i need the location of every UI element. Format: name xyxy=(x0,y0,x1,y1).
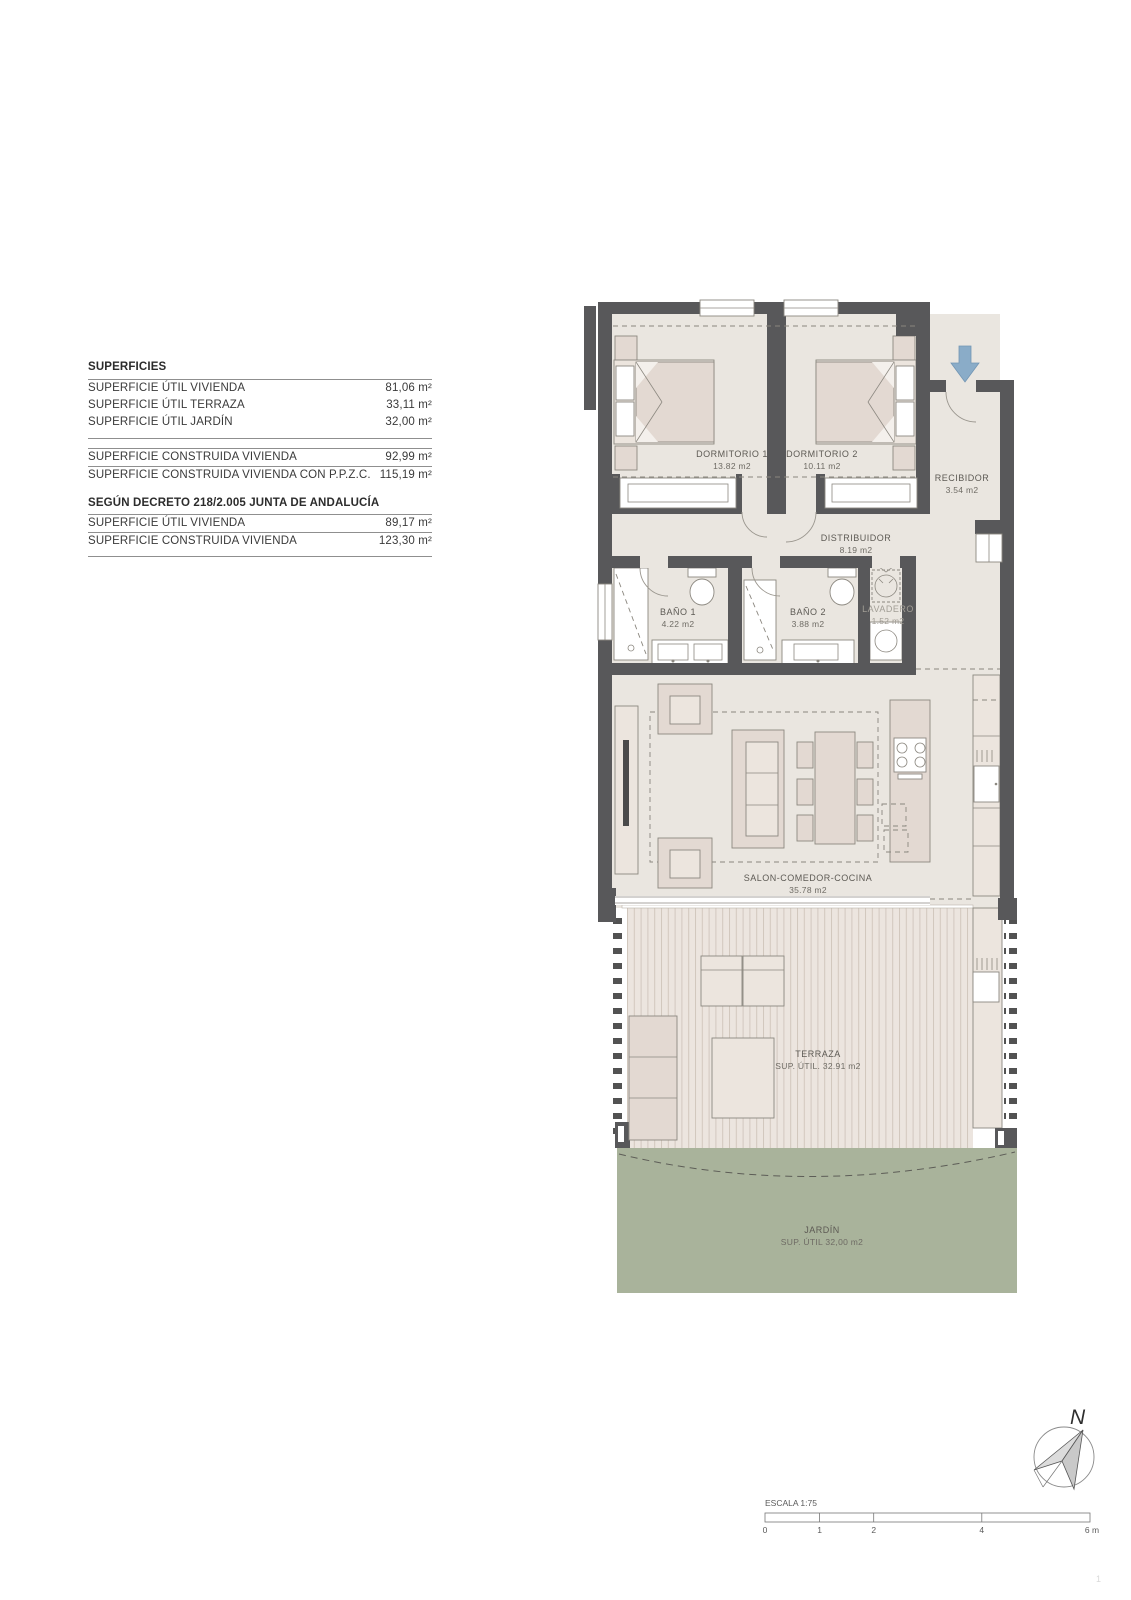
terrace-post-left-inner xyxy=(618,1126,624,1142)
north-label: N xyxy=(1070,1406,1086,1429)
room-area: 35.78 m2 xyxy=(789,885,827,895)
scale-label: ESCALA 1:75 xyxy=(765,1498,817,1508)
armchair-seat xyxy=(670,850,700,878)
wardrobe xyxy=(620,478,736,508)
pillow xyxy=(616,402,634,436)
toilet-tank xyxy=(688,568,716,577)
room-label: DISTRIBUIDOR xyxy=(821,533,892,543)
terrace-edge-left xyxy=(613,914,625,1142)
lounger xyxy=(743,956,784,1006)
terrace xyxy=(613,905,1017,1148)
shower xyxy=(614,568,648,660)
outdoor-sink xyxy=(973,972,999,1002)
room-label: BAÑO 1 xyxy=(660,607,696,617)
room-label: BAÑO 2 xyxy=(790,607,826,617)
scale-tick: 4 xyxy=(979,1525,984,1535)
chair xyxy=(857,779,873,805)
room-area: 3.88 m2 xyxy=(792,619,825,629)
toilet xyxy=(690,579,714,605)
scale-tick: 2 xyxy=(871,1525,876,1535)
terrace-side-counter xyxy=(973,908,1002,1128)
armchair-seat xyxy=(670,696,700,724)
chair xyxy=(797,779,813,805)
nightstand xyxy=(893,446,915,470)
nightstand xyxy=(893,336,915,360)
terrace-edge-right xyxy=(1004,914,1017,1124)
room-label: TERRAZA xyxy=(795,1049,841,1059)
garden xyxy=(617,1148,1017,1293)
nightstand xyxy=(615,446,637,470)
sofa-seat xyxy=(746,742,778,836)
wardrobe xyxy=(825,478,917,508)
outdoor-table xyxy=(712,1038,774,1118)
chair xyxy=(857,742,873,768)
kitchen-island xyxy=(890,700,930,862)
tv xyxy=(623,740,629,826)
terrace-deck xyxy=(627,908,973,1148)
chair xyxy=(797,815,813,841)
chair xyxy=(857,815,873,841)
floorplan-page: SUPERFICIES SUPERFICIE ÚTIL VIVIENDA 81,… xyxy=(0,0,1131,1600)
room-area: SUP. ÚTIL. 32.91 m2 xyxy=(775,1061,860,1071)
lounger xyxy=(701,956,742,1006)
pillow xyxy=(896,366,914,400)
garden-lawn xyxy=(617,1148,1017,1293)
room-label: JARDÍN xyxy=(804,1225,840,1235)
room-label: SALON-COMEDOR-COCINA xyxy=(744,873,873,883)
scale-bar: ESCALA 1:75 0 1 2 4 6 m xyxy=(763,1498,1099,1535)
dining-table xyxy=(815,732,855,844)
toilet-tank xyxy=(828,568,856,577)
terrace-sill xyxy=(622,905,973,908)
room-area: 10.11 m2 xyxy=(803,461,840,471)
scale-tick: 0 xyxy=(763,1525,768,1535)
terrace-post-right-inner xyxy=(998,1131,1004,1145)
room-label: RECIBIDOR xyxy=(935,473,990,483)
room-label: LAVADERO xyxy=(862,604,914,614)
chair xyxy=(797,742,813,768)
room-area: 1.52 m2 xyxy=(872,616,905,626)
outdoor-sofa xyxy=(629,1016,677,1140)
scale-tick: 1 xyxy=(817,1525,822,1535)
hob-controls xyxy=(898,774,922,779)
room-area: 4.22 m2 xyxy=(662,619,695,629)
toilet xyxy=(830,579,854,605)
room-label: DORMITORIO 1 xyxy=(696,449,768,459)
sliding-glass-door xyxy=(615,896,973,905)
room-area: SUP. ÚTIL 32,00 m2 xyxy=(781,1237,863,1247)
pillow xyxy=(896,402,914,436)
double-sink xyxy=(652,640,728,664)
room-area: 8.19 m2 xyxy=(840,545,873,555)
page-number: 1 xyxy=(1096,1574,1101,1584)
room-label: DORMITORIO 2 xyxy=(786,449,858,459)
scale-tick: 6 m xyxy=(1085,1525,1099,1535)
nightstand xyxy=(615,336,637,360)
floor-plan: DORMITORIO 1 13.82 m2 DORMITORIO 2 10.11… xyxy=(0,0,1131,1600)
room-area: 3.54 m2 xyxy=(946,485,979,495)
north-compass-icon: N xyxy=(1034,1406,1094,1489)
pillow xyxy=(616,366,634,400)
room-area: 13.82 m2 xyxy=(713,461,751,471)
